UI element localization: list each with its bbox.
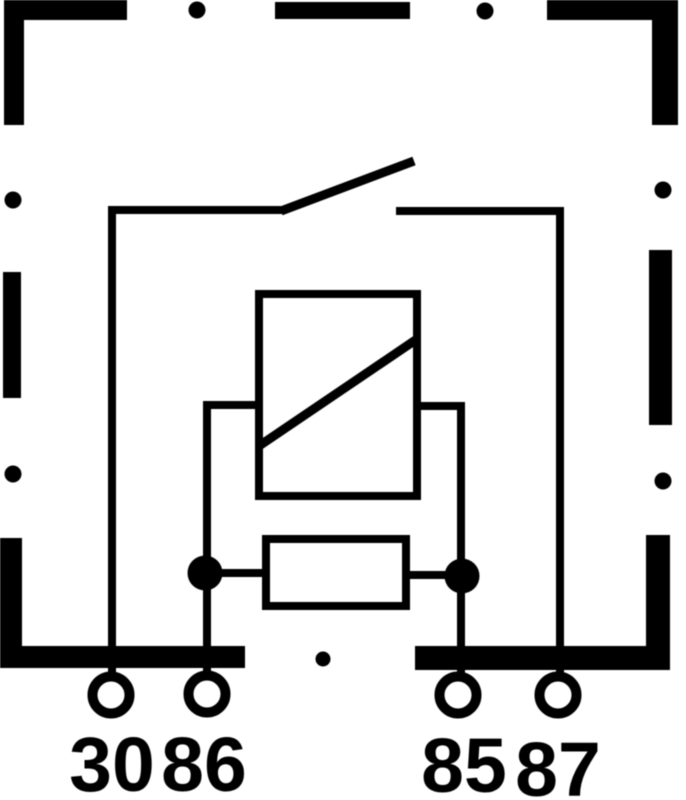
svg-text:85: 85 (421, 723, 507, 800)
svg-text:87: 87 (515, 727, 601, 800)
svg-text:30: 30 (69, 722, 155, 800)
svg-text:86: 86 (161, 722, 247, 800)
